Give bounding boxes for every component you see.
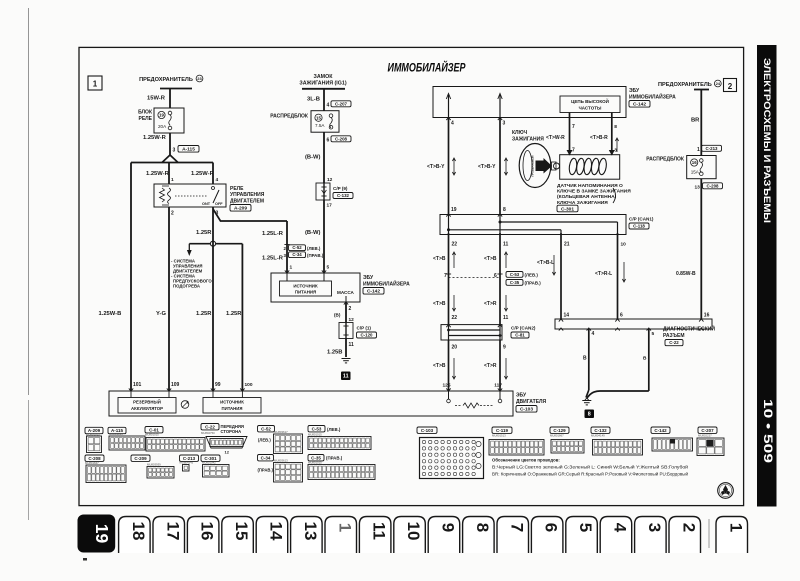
svg-text:(ЛЕВ.): (ЛЕВ.) <box>307 246 321 251</box>
svg-text:4: 4 <box>216 177 219 183</box>
svg-text:15: 15 <box>232 522 251 541</box>
svg-text:C/P (9): C/P (9) <box>333 186 348 191</box>
svg-text:5: 5 <box>327 265 330 271</box>
svg-text:ИММОБИЛАЙЗЕРА: ИММОБИЛАЙЗЕРА <box>363 279 410 287</box>
svg-text:<T>B: <T>B <box>433 301 446 307</box>
svg-text:C-129: C-129 <box>553 428 566 433</box>
svg-text:C-34: C-34 <box>292 252 302 257</box>
svg-text:C/P (CAN1): C/P (CAN1) <box>629 217 654 222</box>
svg-text:7: 7 <box>572 124 575 130</box>
svg-text:C-207: C-207 <box>335 101 348 106</box>
svg-text:19: 19 <box>159 113 164 118</box>
svg-text:MU801015: MU801015 <box>109 432 123 436</box>
svg-text:Y-G: Y-G <box>156 311 166 317</box>
svg-text:C-120: C-120 <box>361 333 374 338</box>
svg-text:1.25R: 1.25R <box>196 230 212 236</box>
svg-text:C-213: C-213 <box>706 146 719 151</box>
svg-text:(ПРАВ.): (ПРАВ.) <box>326 456 343 461</box>
svg-text:<T>B-R: <T>B-R <box>590 135 608 141</box>
svg-text:C-52: C-52 <box>261 426 271 431</box>
svg-text:MU801867: MU801867 <box>550 434 564 438</box>
svg-text:РАСПРЕДБЛОК: РАСПРЕДБЛОК <box>646 157 685 163</box>
svg-text:12: 12 <box>225 450 230 455</box>
svg-text:MU801015: MU801015 <box>308 461 322 465</box>
svg-text:6: 6 <box>542 523 561 532</box>
svg-text:2: 2 <box>679 523 698 532</box>
svg-text:1: 1 <box>335 523 354 532</box>
svg-text:C-142: C-142 <box>633 102 646 108</box>
svg-text:1.25R: 1.25R <box>196 311 212 317</box>
svg-text:ПИТАНИЯ: ПИТАНИЯ <box>222 406 243 411</box>
svg-text:1: 1 <box>171 177 174 183</box>
svg-text:1.25W-R: 1.25W-R <box>191 171 215 177</box>
svg-text:C-132: C-132 <box>337 193 350 198</box>
svg-text:7.5A: 7.5A <box>315 123 325 128</box>
svg-text:ИММОБИЛАЙЗЕР: ИММОБИЛАЙЗЕР <box>388 62 466 75</box>
svg-text:B:Черный LG:Светло зеленый G:З: B:Черный LG:Светло зеленый G:Зеленый L: … <box>492 465 689 470</box>
svg-text:(B-W): (B-W) <box>305 230 321 236</box>
svg-text:11: 11 <box>503 242 509 248</box>
svg-text:2: 2 <box>349 306 352 312</box>
svg-text:ПРОВЕРЯЕМЫЙ: ПРОВЕРЯЕМЫЙ <box>531 155 535 176</box>
svg-text:КЛЮЧ: КЛЮЧ <box>512 130 528 136</box>
svg-text:<T>B-Y: <T>B-Y <box>478 164 496 170</box>
svg-text:0.85W-B: 0.85W-B <box>676 271 696 277</box>
svg-text:14: 14 <box>266 522 285 541</box>
svg-text:6: 6 <box>327 138 330 144</box>
svg-text:1.25L-R: 1.25L-R <box>262 256 284 262</box>
svg-text:C-22: C-22 <box>205 424 215 429</box>
svg-text:5: 5 <box>652 331 655 337</box>
svg-text:MU804149: MU804149 <box>591 434 605 438</box>
svg-text:13: 13 <box>694 185 700 191</box>
svg-text:125: 125 <box>442 383 450 389</box>
svg-text:13: 13 <box>301 522 320 541</box>
svg-text:8: 8 <box>473 523 492 532</box>
svg-text:<T>B-L: <T>B-L <box>537 260 554 266</box>
svg-text:РЕЛЕ: РЕЛЕ <box>138 116 152 122</box>
svg-text:MU801513: MU801513 <box>492 434 506 438</box>
svg-text:ИСТОЧНИК: ИСТОЧНИК <box>220 400 244 405</box>
svg-text:C-119: C-119 <box>496 428 509 433</box>
svg-text:ПРЕДОХРАНИТЕЛЬ: ПРЕДОХРАНИТЕЛЬ <box>139 77 193 83</box>
svg-text:BR: BR <box>691 118 700 124</box>
svg-text:БЛОК: БЛОК <box>138 110 153 116</box>
svg-text:КЛЮЧЕ В ЗАМКЕ ЗАЖИГАНИЯ: КЛЮЧЕ В ЗАМКЕ ЗАЖИГАНИЯ <box>557 189 631 195</box>
svg-text:117: 117 <box>494 383 502 389</box>
svg-text:ONT: ONT <box>202 202 211 206</box>
svg-text:11: 11 <box>370 522 389 540</box>
svg-text:7: 7 <box>507 523 526 532</box>
svg-text:11: 11 <box>349 342 355 348</box>
svg-text:1.25B: 1.25B <box>327 350 342 356</box>
svg-text:10 • 509: 10 • 509 <box>761 399 773 463</box>
svg-text:18: 18 <box>129 522 148 541</box>
svg-text:3: 3 <box>284 253 287 258</box>
svg-text:15: 15 <box>316 115 321 120</box>
svg-text:C-208: C-208 <box>335 136 348 141</box>
svg-text:C-301: C-301 <box>561 206 574 212</box>
svg-text:4: 4 <box>610 523 629 533</box>
svg-text:ЭБУ: ЭБУ <box>363 275 374 281</box>
svg-text:B: B <box>643 356 647 362</box>
svg-text:12: 12 <box>327 177 333 183</box>
svg-text:11: 11 <box>343 374 349 380</box>
svg-text:СТОРОНА: СТОРОНА <box>221 429 242 434</box>
svg-text:2: 2 <box>284 246 287 251</box>
svg-text:16: 16 <box>692 160 697 165</box>
svg-text:<T>W-R: <T>W-R <box>546 135 565 141</box>
svg-text:(ЛЕВ.): (ЛЕВ.) <box>327 427 341 432</box>
svg-text:<T>R: <T>R <box>484 363 497 369</box>
svg-text:MU802750: MU802750 <box>201 431 215 435</box>
svg-text:3: 3 <box>614 148 617 154</box>
svg-text:A-115: A-115 <box>182 147 195 153</box>
svg-text:<T>R: <T>R <box>484 301 497 307</box>
svg-text:MU804343: MU804343 <box>180 461 194 465</box>
svg-text:C/P (CAN2): C/P (CAN2) <box>511 326 536 331</box>
svg-text:C-142: C-142 <box>367 289 380 295</box>
svg-text:АККУМУЛЯТОР: АККУМУЛЯТОР <box>131 406 163 411</box>
svg-text:1.25L-R: 1.25L-R <box>262 231 284 237</box>
svg-text:19: 19 <box>92 524 112 544</box>
svg-text:3L-B: 3L-B <box>307 97 320 103</box>
svg-text:OFF: OFF <box>215 202 223 206</box>
svg-text:ЗАМОК: ЗАМОК <box>314 74 334 80</box>
svg-text:1.25W-B: 1.25W-B <box>99 311 122 317</box>
svg-text:ДАТЧИК НАПОМИНАНИЯ О: ДАТЧИК НАПОМИНАНИЯ О <box>557 183 623 189</box>
svg-text:MU803613: MU803613 <box>274 459 288 463</box>
svg-text:<T>B: <T>B <box>433 256 446 262</box>
svg-text:23: 23 <box>197 76 202 81</box>
svg-text:4: 4 <box>592 331 595 337</box>
svg-text:A-209: A-209 <box>234 206 247 212</box>
svg-text:ЭЛЕКТРОСХЕМЫ И РАЗЪЕМЫ: ЭЛЕКТРОСХЕМЫ И РАЗЪЕМЫ <box>762 58 772 223</box>
svg-text:РАЗЪЕМ: РАЗЪЕМ <box>663 333 685 339</box>
svg-text:C-209: C-209 <box>134 456 147 461</box>
svg-text:C-207: C-207 <box>701 428 714 433</box>
svg-text:<T>R-L: <T>R-L <box>595 271 612 277</box>
svg-text:ЦЕПЬ ВЫСОКОЙ: ЦЕПЬ ВЫСОКОЙ <box>571 97 609 104</box>
svg-text:11: 11 <box>503 315 509 321</box>
svg-text:ЭБУ: ЭБУ <box>629 88 640 94</box>
svg-text:<T>B: <T>B <box>433 363 446 369</box>
svg-text:<T>B-Y: <T>B-Y <box>427 164 445 170</box>
svg-text:РЕЛЕ: РЕЛЕ <box>230 186 244 192</box>
svg-text:(ЛЕВ.): (ЛЕВ.) <box>525 273 539 278</box>
svg-text:BR: Коричневый O:Оранжевый GR:: BR: Коричневый O:Оранжевый GR:Серый R:Кр… <box>492 472 689 477</box>
svg-text:(ПРАВ.): (ПРАВ.) <box>307 253 324 258</box>
svg-text:4: 4 <box>327 103 330 109</box>
svg-text:9: 9 <box>503 345 506 351</box>
svg-text:1: 1 <box>290 265 293 271</box>
svg-text:1.25W-R: 1.25W-R <box>146 171 170 177</box>
svg-text:C-53: C-53 <box>510 272 520 277</box>
svg-text:C-103: C-103 <box>421 428 434 433</box>
svg-text:(ЛЕВ.): (ЛЕВ.) <box>258 438 271 443</box>
svg-text:РЕЗЕРВНЫЙ: РЕЗЕРВНЫЙ <box>133 400 161 405</box>
svg-text:C-81: C-81 <box>515 333 525 338</box>
svg-text:2: 2 <box>171 211 174 217</box>
svg-text:15A: 15A <box>691 170 700 175</box>
svg-text:ДВИГАТЕЛЕМ: ДВИГАТЕЛЕМ <box>230 198 264 204</box>
svg-text:МАССА: МАССА <box>337 290 355 295</box>
svg-text:(B-W): (B-W) <box>305 155 321 161</box>
svg-text:3: 3 <box>645 523 664 532</box>
svg-text:22: 22 <box>452 315 458 321</box>
svg-text:<T>B: <T>B <box>484 256 497 262</box>
svg-text:ЗАЖИГАНИЯ (IG1): ЗАЖИГАНИЯ (IG1) <box>299 81 346 87</box>
svg-text:16: 16 <box>704 313 710 319</box>
svg-text:10: 10 <box>404 522 423 541</box>
svg-text:(ПРАВ.): (ПРАВ.) <box>258 468 274 473</box>
svg-text:ИММОБИЛАЙЗЕРА: ИММОБИЛАЙЗЕРА <box>629 92 676 100</box>
svg-text:(ПРАВ.): (ПРАВ.) <box>525 281 542 286</box>
svg-text:РАСПРЕДБЛОК: РАСПРЕДБЛОК <box>270 114 309 120</box>
svg-text:8: 8 <box>614 124 617 130</box>
svg-text:14: 14 <box>564 313 570 319</box>
svg-text:22: 22 <box>452 242 458 248</box>
svg-text:20A: 20A <box>158 124 167 129</box>
svg-text:5: 5 <box>576 523 595 532</box>
svg-text:C-53: C-53 <box>312 426 322 431</box>
svg-text:6: 6 <box>620 313 623 319</box>
svg-text:MU803939: MU803939 <box>147 463 161 467</box>
svg-text:MU801847: MU801847 <box>85 461 99 465</box>
svg-text:C-142: C-142 <box>654 428 667 433</box>
svg-text:8: 8 <box>588 412 591 418</box>
svg-text:101: 101 <box>133 382 142 388</box>
svg-text:17: 17 <box>327 203 333 209</box>
svg-text:MU801015: MU801015 <box>308 433 322 437</box>
svg-text:21: 21 <box>564 242 570 248</box>
svg-text:15W-R: 15W-R <box>147 96 166 102</box>
svg-text:ЧАСТОТЫ: ЧАСТОТЫ <box>579 106 602 111</box>
svg-text:ДВИГАТЕЛЯ: ДВИГАТЕЛЯ <box>516 399 547 405</box>
svg-text:ПОДОГРЕВА: ПОДОГРЕВА <box>173 284 200 289</box>
svg-text:109: 109 <box>171 382 180 388</box>
svg-text:C-35: C-35 <box>510 280 520 285</box>
svg-text:7: 7 <box>572 148 575 154</box>
svg-text:1.25W-R: 1.25W-R <box>143 135 167 141</box>
svg-text:C-118: C-118 <box>633 224 645 229</box>
svg-text:(B): (B) <box>334 313 341 318</box>
svg-text:4: 4 <box>451 121 454 127</box>
svg-text:24: 24 <box>716 81 721 86</box>
svg-text:100: 100 <box>245 382 253 388</box>
svg-text:Обозначение цветов проводов:: Обозначение цветов проводов: <box>492 458 560 463</box>
svg-text:8: 8 <box>503 207 506 213</box>
svg-text:C-34: C-34 <box>261 455 271 460</box>
svg-text:ЭБУ: ЭБУ <box>516 393 527 399</box>
svg-text:9: 9 <box>438 523 457 532</box>
svg-text:ДИАГНОСТИЧЕСКИЙ: ДИАГНОСТИЧЕСКИЙ <box>663 325 715 333</box>
svg-text:10: 10 <box>621 242 627 248</box>
svg-text:C-132: C-132 <box>594 428 607 433</box>
svg-text:C/P (1): C/P (1) <box>357 326 372 331</box>
svg-text:ЗАЖИГАНИЯ: ЗАЖИГАНИЯ <box>512 136 544 142</box>
svg-text:C-103: C-103 <box>520 407 533 413</box>
svg-text:2: 2 <box>728 82 733 91</box>
svg-text:УПРАВЛЕНИЯ: УПРАВЛЕНИЯ <box>230 192 265 198</box>
svg-text:C-52: C-52 <box>292 245 302 250</box>
svg-text:20: 20 <box>452 345 458 351</box>
svg-text:C-208: C-208 <box>707 183 720 188</box>
svg-text:3: 3 <box>503 121 506 127</box>
svg-text:3: 3 <box>173 148 176 154</box>
svg-text:99: 99 <box>215 382 221 388</box>
svg-text:1: 1 <box>93 80 98 89</box>
svg-text:ПРЕДОХРАНИТЕЛЬ: ПРЕДОХРАНИТЕЛЬ <box>658 82 712 88</box>
svg-text:MU802227: MU802227 <box>698 434 712 438</box>
svg-text:ПИТАНИЯ: ПИТАНИЯ <box>295 290 316 295</box>
svg-text:B: B <box>583 356 587 362</box>
svg-text:C-22: C-22 <box>669 340 679 345</box>
svg-text:6: 6 <box>494 273 497 279</box>
svg-text:19: 19 <box>451 207 457 213</box>
svg-text:MU801042: MU801042 <box>202 461 216 465</box>
svg-text:(КОЛЬЦЕВАЯ АНТЕННА): (КОЛЬЦЕВАЯ АНТЕННА) <box>557 194 617 200</box>
svg-text:1: 1 <box>697 147 700 153</box>
svg-text:1: 1 <box>726 523 745 532</box>
svg-text:ИСТОЧНИК: ИСТОЧНИК <box>293 284 318 289</box>
svg-text:16: 16 <box>198 522 217 541</box>
svg-text:1.25R: 1.25R <box>226 311 242 317</box>
svg-text:17: 17 <box>163 522 182 541</box>
svg-text:MU801015: MU801015 <box>145 433 159 437</box>
